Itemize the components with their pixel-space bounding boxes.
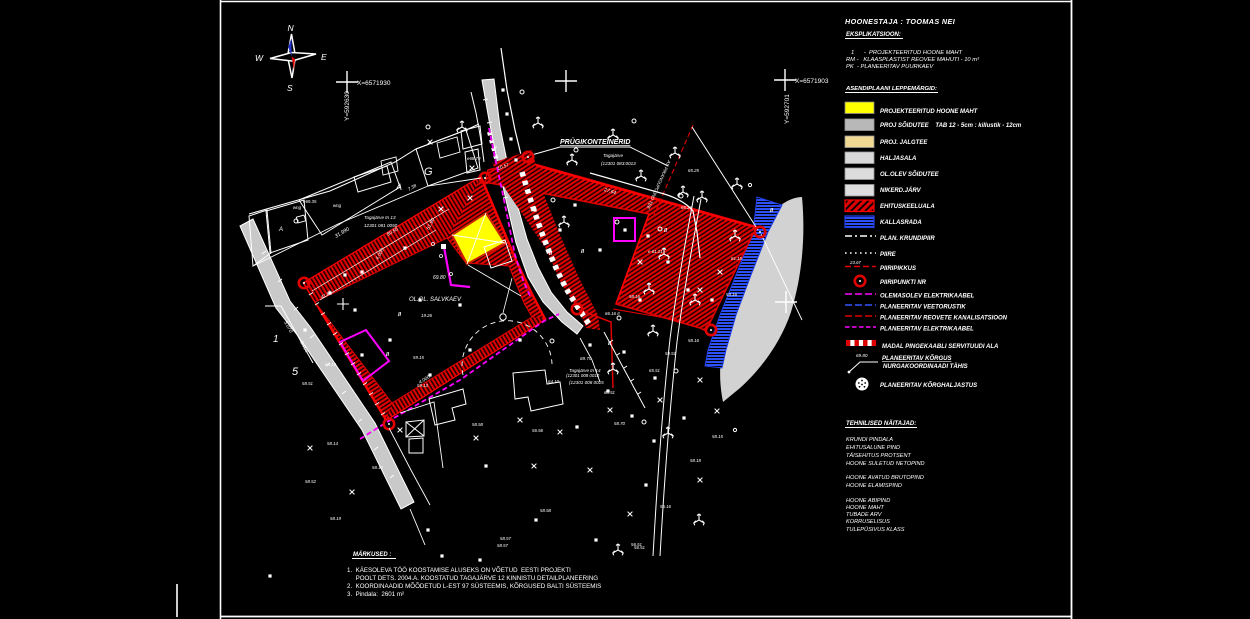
svg-text:58.58: 58.58 bbox=[472, 422, 484, 427]
svg-text:58.16: 58.16 bbox=[629, 294, 641, 299]
svg-text:RM - KLAASPLASTIST REOVEE MA: RM - KLAASPLASTIST REOVEE MAHUTI - 10 m³ bbox=[846, 57, 980, 63]
svg-text:PRÜGIKONTEINERID: PRÜGIKONTEINERID bbox=[560, 137, 630, 146]
svg-text:1 - PROJEKTEERITUD HOONE: 1 - PROJEKTEERITUD HOONE MAHT bbox=[851, 50, 963, 56]
svg-text:G: G bbox=[424, 166, 433, 178]
svg-text:Y=592630: Y=592630 bbox=[344, 91, 351, 121]
svg-text:EHITUSKEELUALA: EHITUSKEELUALA bbox=[880, 204, 935, 210]
svg-text:58.18: 58.18 bbox=[690, 458, 702, 463]
svg-text:59.13: 59.13 bbox=[417, 383, 429, 388]
svg-text:(12301 083:0013: (12301 083:0013 bbox=[601, 161, 636, 166]
svg-text:II: II bbox=[398, 312, 402, 318]
svg-text:(12301 008 0010: (12301 008 0010 bbox=[566, 373, 600, 378]
svg-text:E: E bbox=[321, 52, 327, 62]
svg-text:OL.OL. SALVKAEV: OL.OL. SALVKAEV bbox=[409, 297, 462, 303]
svg-text:S: S bbox=[287, 83, 293, 93]
svg-text:56.16: 56.16 bbox=[660, 504, 672, 509]
svg-text:58.70: 58.70 bbox=[614, 421, 626, 426]
svg-text:5: 5 bbox=[292, 366, 299, 378]
svg-text:II: II bbox=[770, 208, 774, 214]
svg-text:58.16: 58.16 bbox=[688, 338, 700, 343]
svg-text:58.57: 58.57 bbox=[500, 536, 512, 541]
svg-text:KORRUSELISUS: KORRUSELISUS bbox=[846, 519, 890, 525]
svg-text:HOONE SULETUD NETOPIND: HOONE SULETUD NETOPIND bbox=[846, 461, 925, 467]
svg-text:II: II bbox=[581, 249, 585, 255]
svg-text:66.16 II: 66.16 II bbox=[605, 311, 620, 316]
svg-text:58.15: 58.15 bbox=[712, 434, 724, 439]
svg-text:KALLASRADA: KALLASRADA bbox=[880, 220, 922, 226]
svg-text:58.57: 58.57 bbox=[497, 543, 509, 548]
svg-text:Tagajärve: Tagajärve bbox=[603, 153, 623, 158]
svg-text:EKSPLIKATSIOON:: EKSPLIKATSIOON: bbox=[846, 32, 901, 38]
svg-text:1. KÄESOLEVA TÖÖ KOOSTAMISE A: 1. KÄESOLEVA TÖÖ KOOSTAMISE ALUSEKS ON V… bbox=[347, 567, 571, 574]
svg-text:EHITUSALUNE PIND: EHITUSALUNE PIND bbox=[846, 445, 900, 451]
svg-text:PROJ SÕIDUTEE TAB 12 - 5cm: PROJ SÕIDUTEE TAB 12 - 5cm : killustik -… bbox=[880, 122, 1022, 129]
svg-text:23.67: 23.67 bbox=[849, 260, 862, 265]
svg-text:19.26: 19.26 bbox=[421, 313, 433, 318]
svg-text:TUBADE ARV: TUBADE ARV bbox=[846, 512, 883, 518]
svg-text:59.16: 59.16 bbox=[726, 292, 738, 297]
svg-text:W: W bbox=[255, 53, 264, 63]
svg-text:HOONE ELAMISPIND: HOONE ELAMISPIND bbox=[846, 483, 902, 489]
svg-text:56.56: 56.56 bbox=[532, 428, 544, 433]
svg-text:3. Pindala: 2601 m²: 3. Pindala: 2601 m² bbox=[347, 591, 404, 598]
svg-text:(12301 008 0015: (12301 008 0015 bbox=[569, 380, 604, 385]
svg-text:PIIRE: PIIRE bbox=[880, 252, 897, 258]
svg-text:HOONE AVATUD BRUTOPIND: HOONE AVATUD BRUTOPIND bbox=[846, 475, 924, 481]
svg-text:PLANEERITAV KÕRGUS: PLANEERITAV KÕRGUS bbox=[882, 355, 951, 362]
svg-text:PLANEERITAV KÕRGHALJASTUS: PLANEERITAV KÕRGHALJASTUS bbox=[880, 382, 977, 389]
svg-text:e 61.21: e 61.21 bbox=[648, 249, 663, 254]
svg-text:.: . bbox=[655, 0, 656, 1]
svg-text:POOLT DETS. 2004.A. KOOSTATUD: POOLT DETS. 2004.A. KOOSTATUD TAGAJÄRVE … bbox=[347, 575, 598, 582]
svg-text:II: II bbox=[664, 228, 668, 234]
svg-text:PLANEERITAV VEETORUSTIK: PLANEERITAV VEETORUSTIK bbox=[880, 305, 966, 311]
svg-text:TÄISEHITUS PROTSENT: TÄISEHITUS PROTSENT bbox=[846, 452, 912, 459]
svg-text:59.15: 59.15 bbox=[413, 355, 425, 360]
svg-text:58.52: 58.52 bbox=[305, 479, 317, 484]
svg-text:2. KOORDINAADID MÕÕDETUD L-ES: 2. KOORDINAADID MÕÕDETUD L-EST 97 SÜSTEE… bbox=[347, 583, 601, 590]
svg-text:PIIRIPIKKUS: PIIRIPIKKUS bbox=[880, 266, 916, 272]
svg-text:58.10: 58.10 bbox=[372, 465, 384, 470]
svg-text:PLANEERITAV ELEKTRIKAABEL: PLANEERITAV ELEKTRIKAABEL bbox=[880, 327, 974, 333]
svg-text:PLAN. KRUNDIPIIR: PLAN. KRUNDIPIIR bbox=[880, 236, 935, 242]
svg-text:NURGAKOORDINAADI TÄHIS: NURGAKOORDINAADI TÄHIS bbox=[883, 363, 968, 370]
svg-text:MÄRKUSED :: MÄRKUSED : bbox=[353, 551, 391, 558]
svg-text:Tagajärve tn 13: Tagajärve tn 13 bbox=[364, 215, 396, 220]
svg-text:HOONE MAHT: HOONE MAHT bbox=[846, 505, 884, 511]
svg-text:HOONESTAJA : TOOMAS NEI: HOONESTAJA : TOOMAS NEI bbox=[845, 17, 956, 26]
svg-text:HOONE ABIPIND: HOONE ABIPIND bbox=[846, 498, 890, 504]
svg-text:wng: wng bbox=[293, 205, 302, 210]
svg-text:OLEMASOLEV ELEKTRIKAABEL: OLEMASOLEV ELEKTRIKAABEL bbox=[880, 294, 975, 300]
svg-text:II: II bbox=[549, 251, 553, 257]
svg-text:MADAL PINGEKAABLI SERVITUUDI A: MADAL PINGEKAABLI SERVITUUDI ALA bbox=[882, 344, 998, 350]
svg-text:58.51: 58.51 bbox=[302, 381, 314, 386]
svg-text:69.80: 69.80 bbox=[433, 275, 446, 281]
svg-text:KRUNDI PINDALA: KRUNDI PINDALA bbox=[846, 437, 893, 443]
svg-text:NIKERD.JÄRV: NIKERD.JÄRV bbox=[880, 187, 922, 194]
svg-text:69.80: 69.80 bbox=[856, 353, 868, 358]
svg-text:TULEPÜSIVUS KLASS: TULEPÜSIVUS KLASS bbox=[846, 526, 905, 533]
svg-text:N: N bbox=[288, 23, 295, 33]
svg-text:PROJ. JALGTEE: PROJ. JALGTEE bbox=[880, 140, 928, 146]
svg-text:HALJASALA: HALJASALA bbox=[880, 156, 916, 162]
svg-text:PLANEERITAV REOVETE KANALISATS: PLANEERITAV REOVETE KANALISATSIOON bbox=[880, 316, 1008, 322]
svg-text:wng: wng bbox=[333, 203, 342, 208]
svg-text:56.51: 56.51 bbox=[634, 545, 646, 550]
svg-text:59.51: 59.51 bbox=[665, 351, 677, 356]
svg-text:X=6571930: X=6571930 bbox=[357, 80, 391, 87]
svg-text:II: II bbox=[386, 352, 390, 358]
svg-text:65.26: 65.26 bbox=[681, 205, 693, 210]
svg-text:e69.35: e69.35 bbox=[303, 199, 317, 204]
svg-text:58.58: 58.58 bbox=[540, 508, 552, 513]
svg-text:A: A bbox=[278, 227, 283, 233]
svg-text:58.15: 58.15 bbox=[325, 362, 337, 367]
svg-text:e68.79: e68.79 bbox=[467, 156, 481, 161]
svg-text:12301 081 0050: 12301 081 0050 bbox=[364, 223, 398, 228]
svg-text:A: A bbox=[395, 182, 402, 192]
svg-text:Y=592701: Y=592701 bbox=[784, 94, 791, 124]
svg-text:TEHNILISED NÄITAJAD:: TEHNILISED NÄITAJAD: bbox=[846, 420, 916, 427]
svg-text:65.51: 65.51 bbox=[649, 368, 661, 373]
svg-text:61.15: 61.15 bbox=[731, 256, 743, 261]
svg-text:ASENDIPLAANI LEPPEMÄRGID:: ASENDIPLAANI LEPPEMÄRGID: bbox=[845, 85, 937, 92]
svg-text:64.10: 64.10 bbox=[548, 379, 560, 384]
svg-text:69.70: 69.70 bbox=[580, 356, 592, 361]
svg-text:PK - PLANEERITAV PUURKAEV: PK - PLANEERITAV PUURKAEV bbox=[846, 64, 934, 70]
svg-text:68.51: 68.51 bbox=[604, 390, 616, 395]
svg-text:65.25: 65.25 bbox=[688, 168, 700, 173]
svg-text:X=6571903: X=6571903 bbox=[795, 78, 829, 85]
svg-text:1: 1 bbox=[273, 334, 279, 345]
svg-text:PROJEKTEERITUD HOONE MAHT: PROJEKTEERITUD HOONE MAHT bbox=[880, 109, 979, 115]
svg-text:58.14: 58.14 bbox=[327, 441, 339, 446]
svg-text:PIIRIPUNKTI NR: PIIRIPUNKTI NR bbox=[880, 280, 927, 286]
svg-text:OL.OLEV SÕIDUTEE: OL.OLEV SÕIDUTEE bbox=[880, 171, 940, 178]
svg-text:II: II bbox=[608, 341, 612, 347]
svg-text:58.19: 58.19 bbox=[330, 516, 342, 521]
